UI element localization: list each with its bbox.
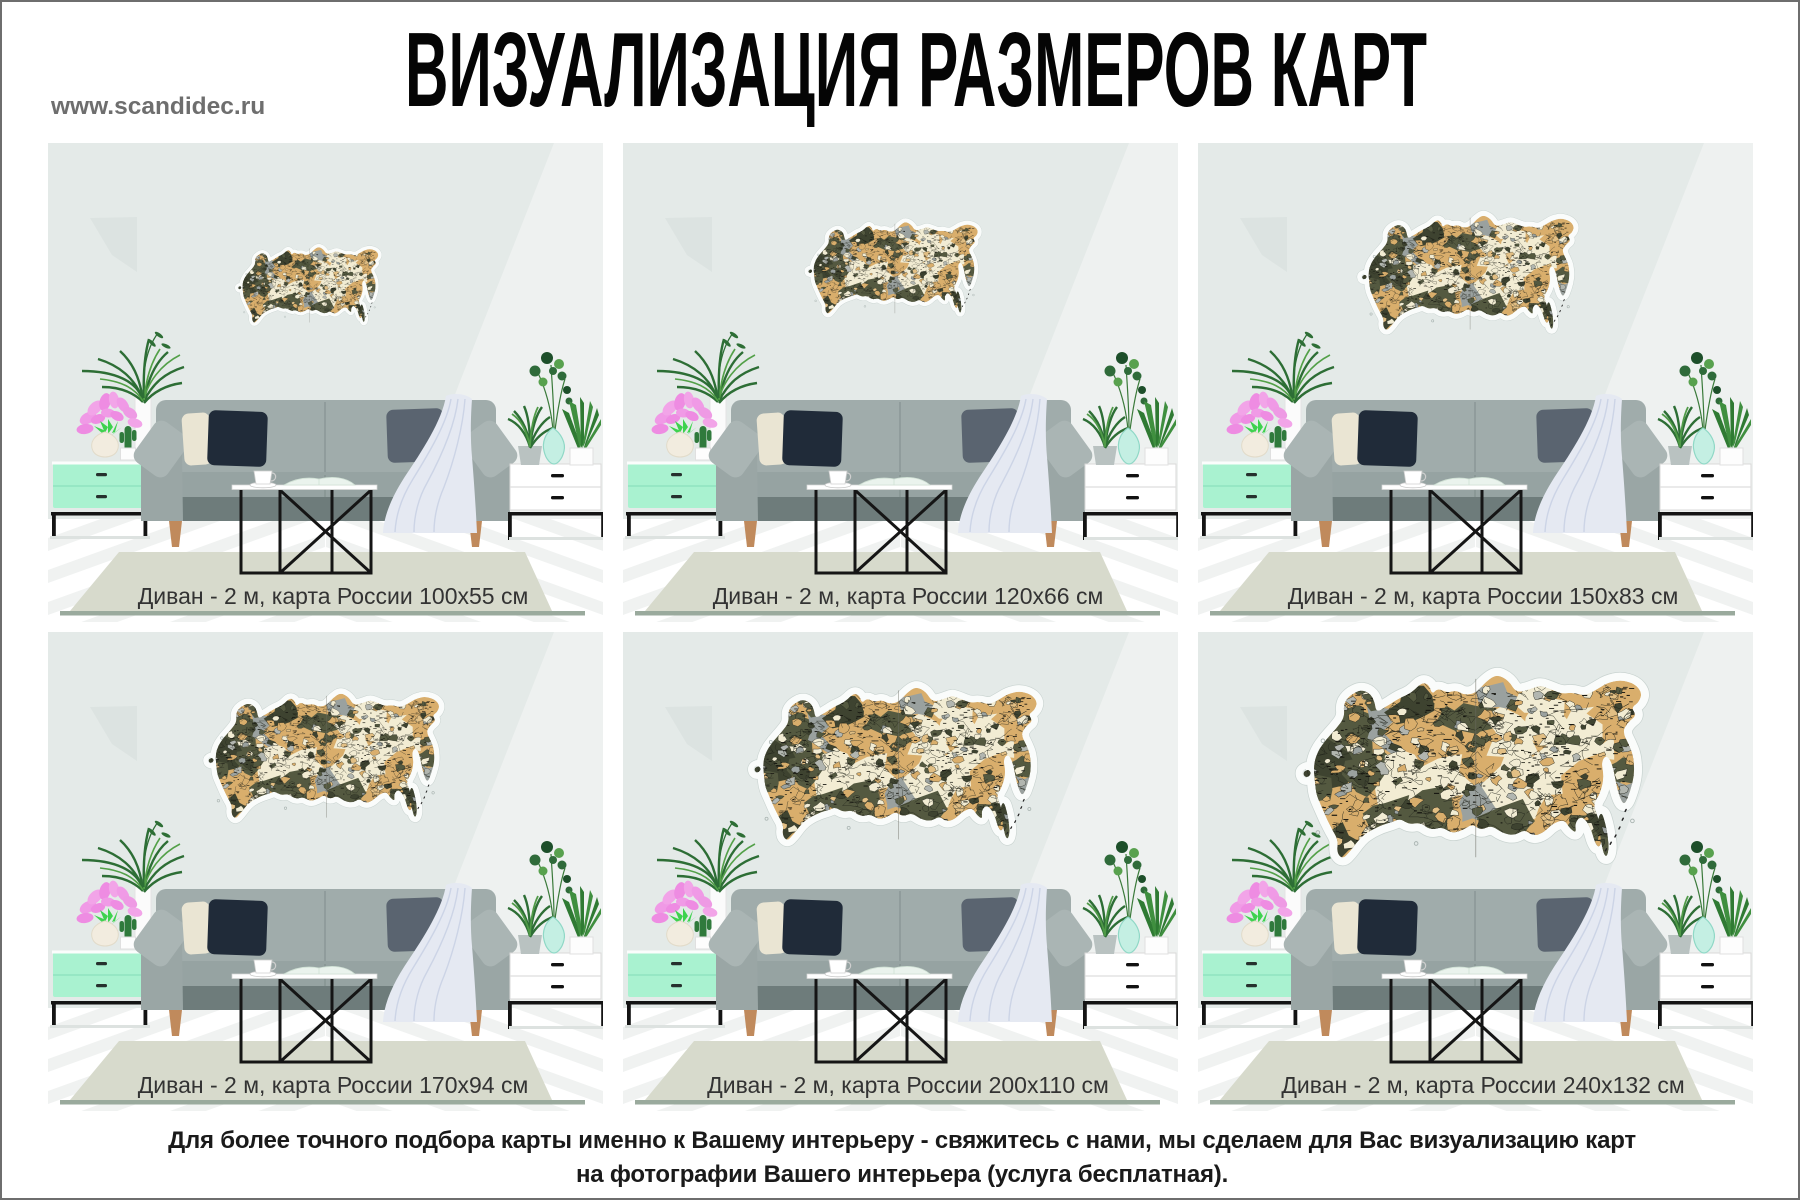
svg-text:Диван - 2 м, карта России 200x: Диван - 2 м, карта России 200x110 см [707, 1072, 1109, 1098]
svg-text:Диван - 2 м, карта России 100x: Диван - 2 м, карта России 100x55 см [138, 583, 529, 609]
svg-text:Диван - 2 м, карта России 240x: Диван - 2 м, карта России 240x132 см [1281, 1072, 1684, 1098]
svg-text:ВИЗУАЛИЗАЦИЯ РАЗМЕРОВ КАРТ: ВИЗУАЛИЗАЦИЯ РАЗМЕРОВ КАРТ [405, 11, 1427, 129]
svg-text:Диван - 2 м, карта России 150x: Диван - 2 м, карта России 150x83 см [1288, 583, 1679, 609]
svg-text:Диван - 2 м, карта России 120x: Диван - 2 м, карта России 120x66 см [713, 583, 1104, 609]
svg-text:Диван - 2 м, карта России 170x: Диван - 2 м, карта России 170x94 см [138, 1072, 529, 1098]
